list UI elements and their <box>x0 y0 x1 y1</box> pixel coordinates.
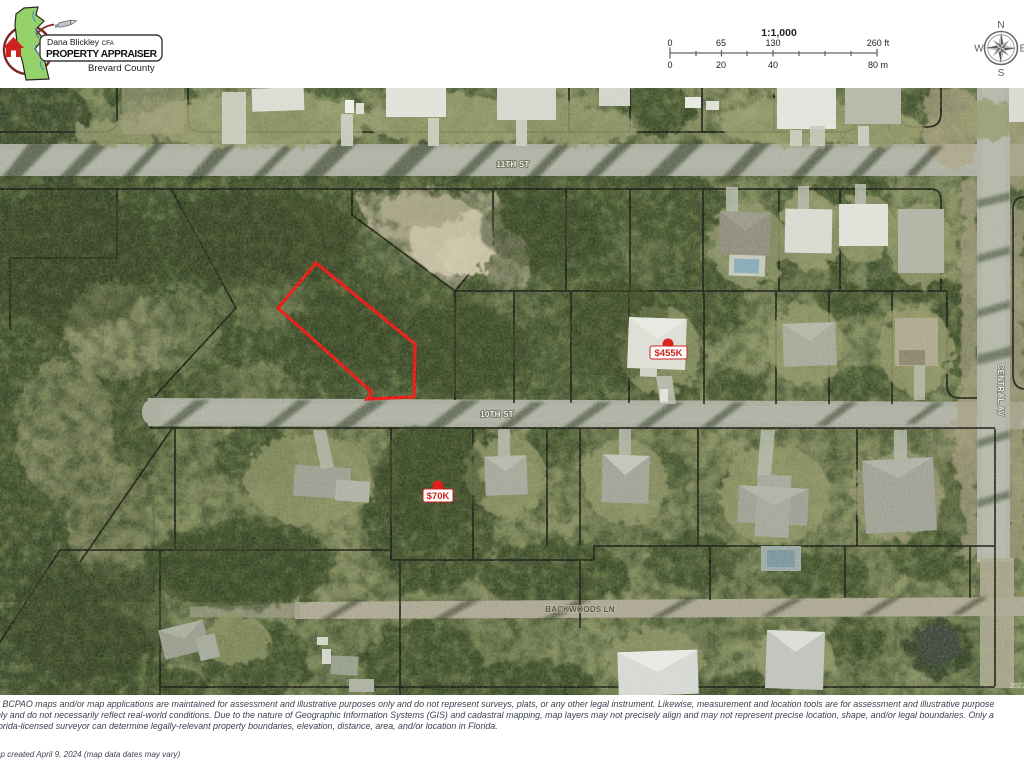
svg-text:ap created April 9, 2024 (map: ap created April 9, 2024 (map data dates… <box>0 750 180 759</box>
svg-text:40: 40 <box>768 60 778 70</box>
svg-text:130: 130 <box>765 38 780 48</box>
svg-text:0: 0 <box>667 38 672 48</box>
svg-text:N: N <box>997 20 1004 31</box>
svg-text:PROPERTY APPRAISER: PROPERTY APPRAISER <box>46 49 158 60</box>
svg-text:S: S <box>998 68 1005 79</box>
svg-text:260 ft: 260 ft <box>867 38 890 48</box>
svg-text:65: 65 <box>716 38 726 48</box>
svg-text:nly and do not necessarily ref: nly and do not necessarily reflect real-… <box>0 710 994 720</box>
svg-text:lorida-licensed surveyor can d: lorida-licensed surveyor can determine l… <box>0 721 498 731</box>
svg-text:20: 20 <box>716 60 726 70</box>
svg-text:Brevard County: Brevard County <box>88 63 155 74</box>
svg-text:E: E <box>1020 44 1024 55</box>
svg-text:W: W <box>974 44 984 55</box>
svg-text:ll BCPAO maps and/or map appli: ll BCPAO maps and/or map applications ar… <box>0 699 994 709</box>
svg-text:0: 0 <box>667 60 672 70</box>
svg-text:80 m: 80 m <box>868 60 888 70</box>
